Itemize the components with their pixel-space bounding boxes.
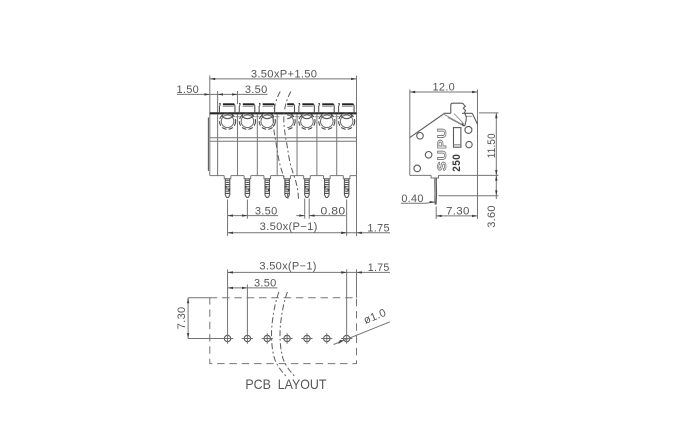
svg-text:3.50x(P−1): 3.50x(P−1) [260, 221, 318, 233]
svg-text:1.75: 1.75 [367, 223, 390, 235]
svg-text:0.40: 0.40 [401, 193, 423, 205]
svg-text:1.50: 1.50 [176, 84, 199, 96]
svg-text:0.80: 0.80 [321, 205, 346, 217]
svg-text:3.50: 3.50 [245, 84, 268, 96]
svg-text:3.60: 3.60 [486, 205, 498, 228]
svg-text:12.0: 12.0 [432, 82, 455, 94]
svg-text:PCB LAYOUT: PCB LAYOUT [245, 376, 326, 392]
svg-text:7.30: 7.30 [176, 307, 188, 330]
svg-text:11.50: 11.50 [486, 133, 498, 158]
svg-text:1.75: 1.75 [368, 262, 390, 274]
svg-text:250: 250 [451, 154, 463, 172]
svg-text:7.30: 7.30 [446, 206, 470, 218]
svg-text:3.50xP+1.50: 3.50xP+1.50 [251, 68, 318, 80]
svg-text:3.50: 3.50 [255, 205, 278, 217]
svg-text:3.50: 3.50 [254, 277, 277, 289]
svg-text:SUPU: SUPU [437, 127, 449, 171]
svg-text:3.50x(P−1): 3.50x(P−1) [259, 260, 316, 272]
